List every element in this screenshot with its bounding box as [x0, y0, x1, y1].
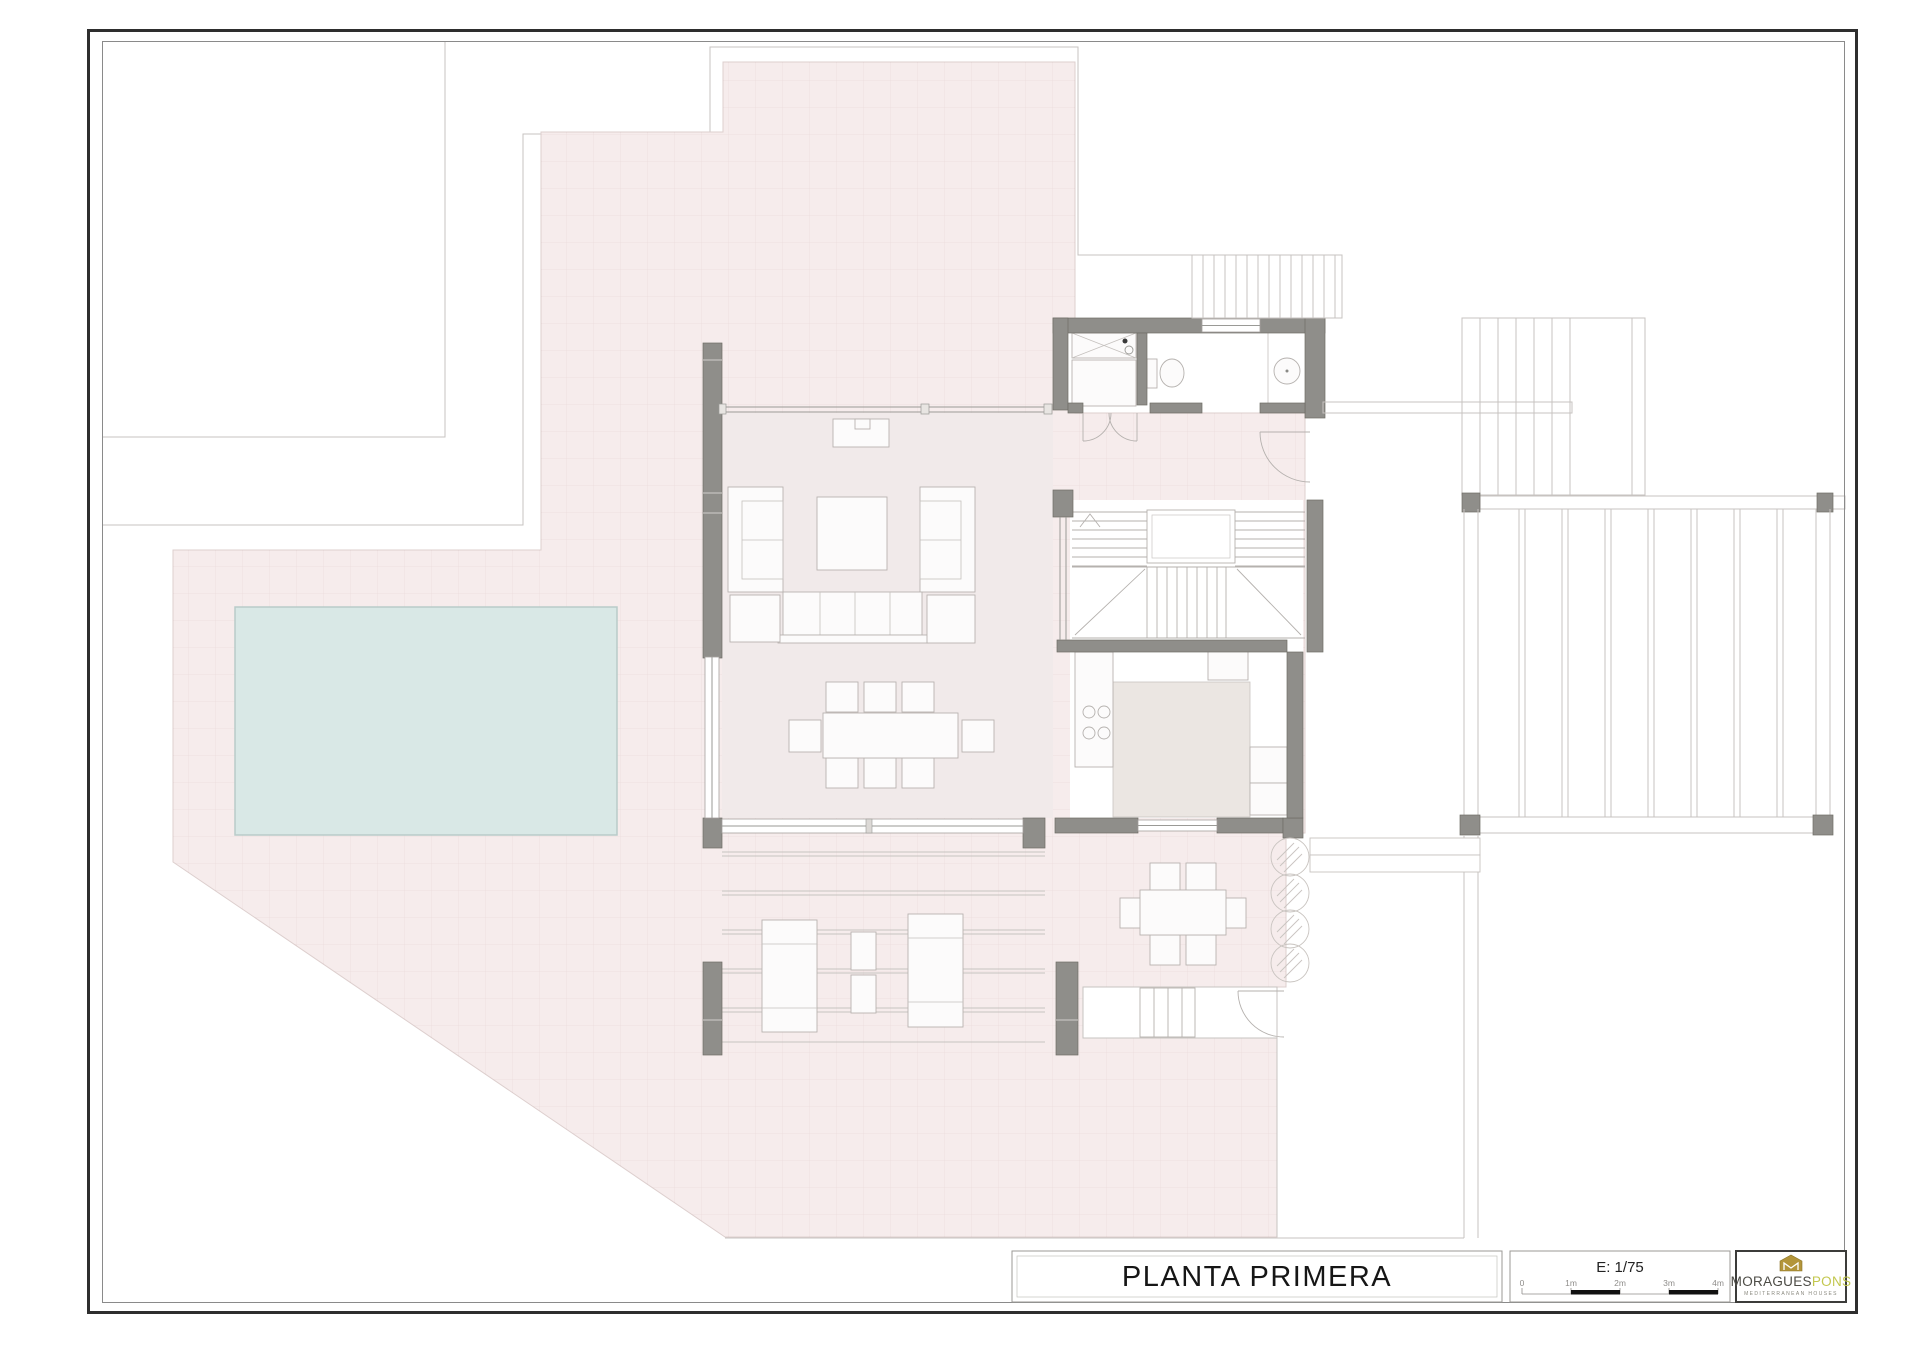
brand-name: MORAGUESPONS [1731, 1274, 1852, 1289]
pergola-entrance-slats [1192, 255, 1342, 318]
scale-tick: 4m [1712, 1278, 1724, 1288]
pergola-top-beam [1480, 496, 1845, 509]
pergola-post [1460, 815, 1480, 835]
plot-line [1464, 835, 1478, 1238]
exterior-steps-strip [1083, 987, 1284, 1038]
pergola-slats [1464, 509, 1830, 817]
kitchen-cabinet [1250, 747, 1287, 783]
shower-head-icon [1123, 339, 1128, 344]
kitchen-island-counter [1113, 682, 1250, 817]
floor-plan-sheet: PLANTA PRIMERA E: 1/75 0 1m 2m 3m 4m MOR… [0, 0, 1920, 1357]
pergola-post [1817, 493, 1833, 512]
plan-title: PLANTA PRIMERA [1122, 1261, 1392, 1293]
scale-tick: 1m [1565, 1278, 1577, 1288]
pergola-bottom-beam [1464, 817, 1831, 833]
pergola-upper [1323, 318, 1645, 495]
sofa-left [728, 487, 783, 592]
logo-block: MORAGUESPONS MEDITERRANEAN HOUSES [1731, 1251, 1852, 1302]
coffee-table [817, 497, 887, 570]
scale-tick: 2m [1614, 1278, 1626, 1288]
shower-tray [1072, 360, 1136, 406]
side-table-right [927, 595, 975, 643]
bathroom [1068, 333, 1305, 406]
sofa-bottom [730, 592, 975, 643]
scale-tick: 3m [1663, 1278, 1675, 1288]
title-block: PLANTA PRIMERA [1012, 1251, 1502, 1302]
pergola-post [1813, 815, 1833, 835]
step [1310, 838, 1480, 855]
scale-tick: 0 [1520, 1278, 1525, 1288]
shower [1072, 333, 1136, 406]
pergola-post [1462, 493, 1480, 512]
pergola-right [1310, 493, 1845, 1238]
pergola-beam [1323, 402, 1572, 413]
kitchen-sink [1208, 651, 1248, 680]
sofa-right [920, 487, 975, 592]
floor-plan-drawing: PLANTA PRIMERA E: 1/75 0 1m 2m 3m 4m MOR… [0, 0, 1920, 1357]
stair-landing [1147, 510, 1235, 563]
scale-label: E: 1/75 [1596, 1259, 1644, 1276]
dining-table [823, 713, 958, 758]
scale-block: E: 1/75 0 1m 2m 3m 4m [1510, 1251, 1730, 1302]
step [1310, 855, 1480, 872]
kitchen-cabinet [1250, 783, 1287, 815]
toilet [1147, 359, 1184, 388]
brand-tagline: MEDITERRANEAN HOUSES [1744, 1291, 1838, 1297]
swimming-pool [235, 607, 617, 835]
outdoor-table [1140, 890, 1226, 935]
tv-unit [833, 419, 889, 447]
side-table-left [730, 595, 780, 642]
